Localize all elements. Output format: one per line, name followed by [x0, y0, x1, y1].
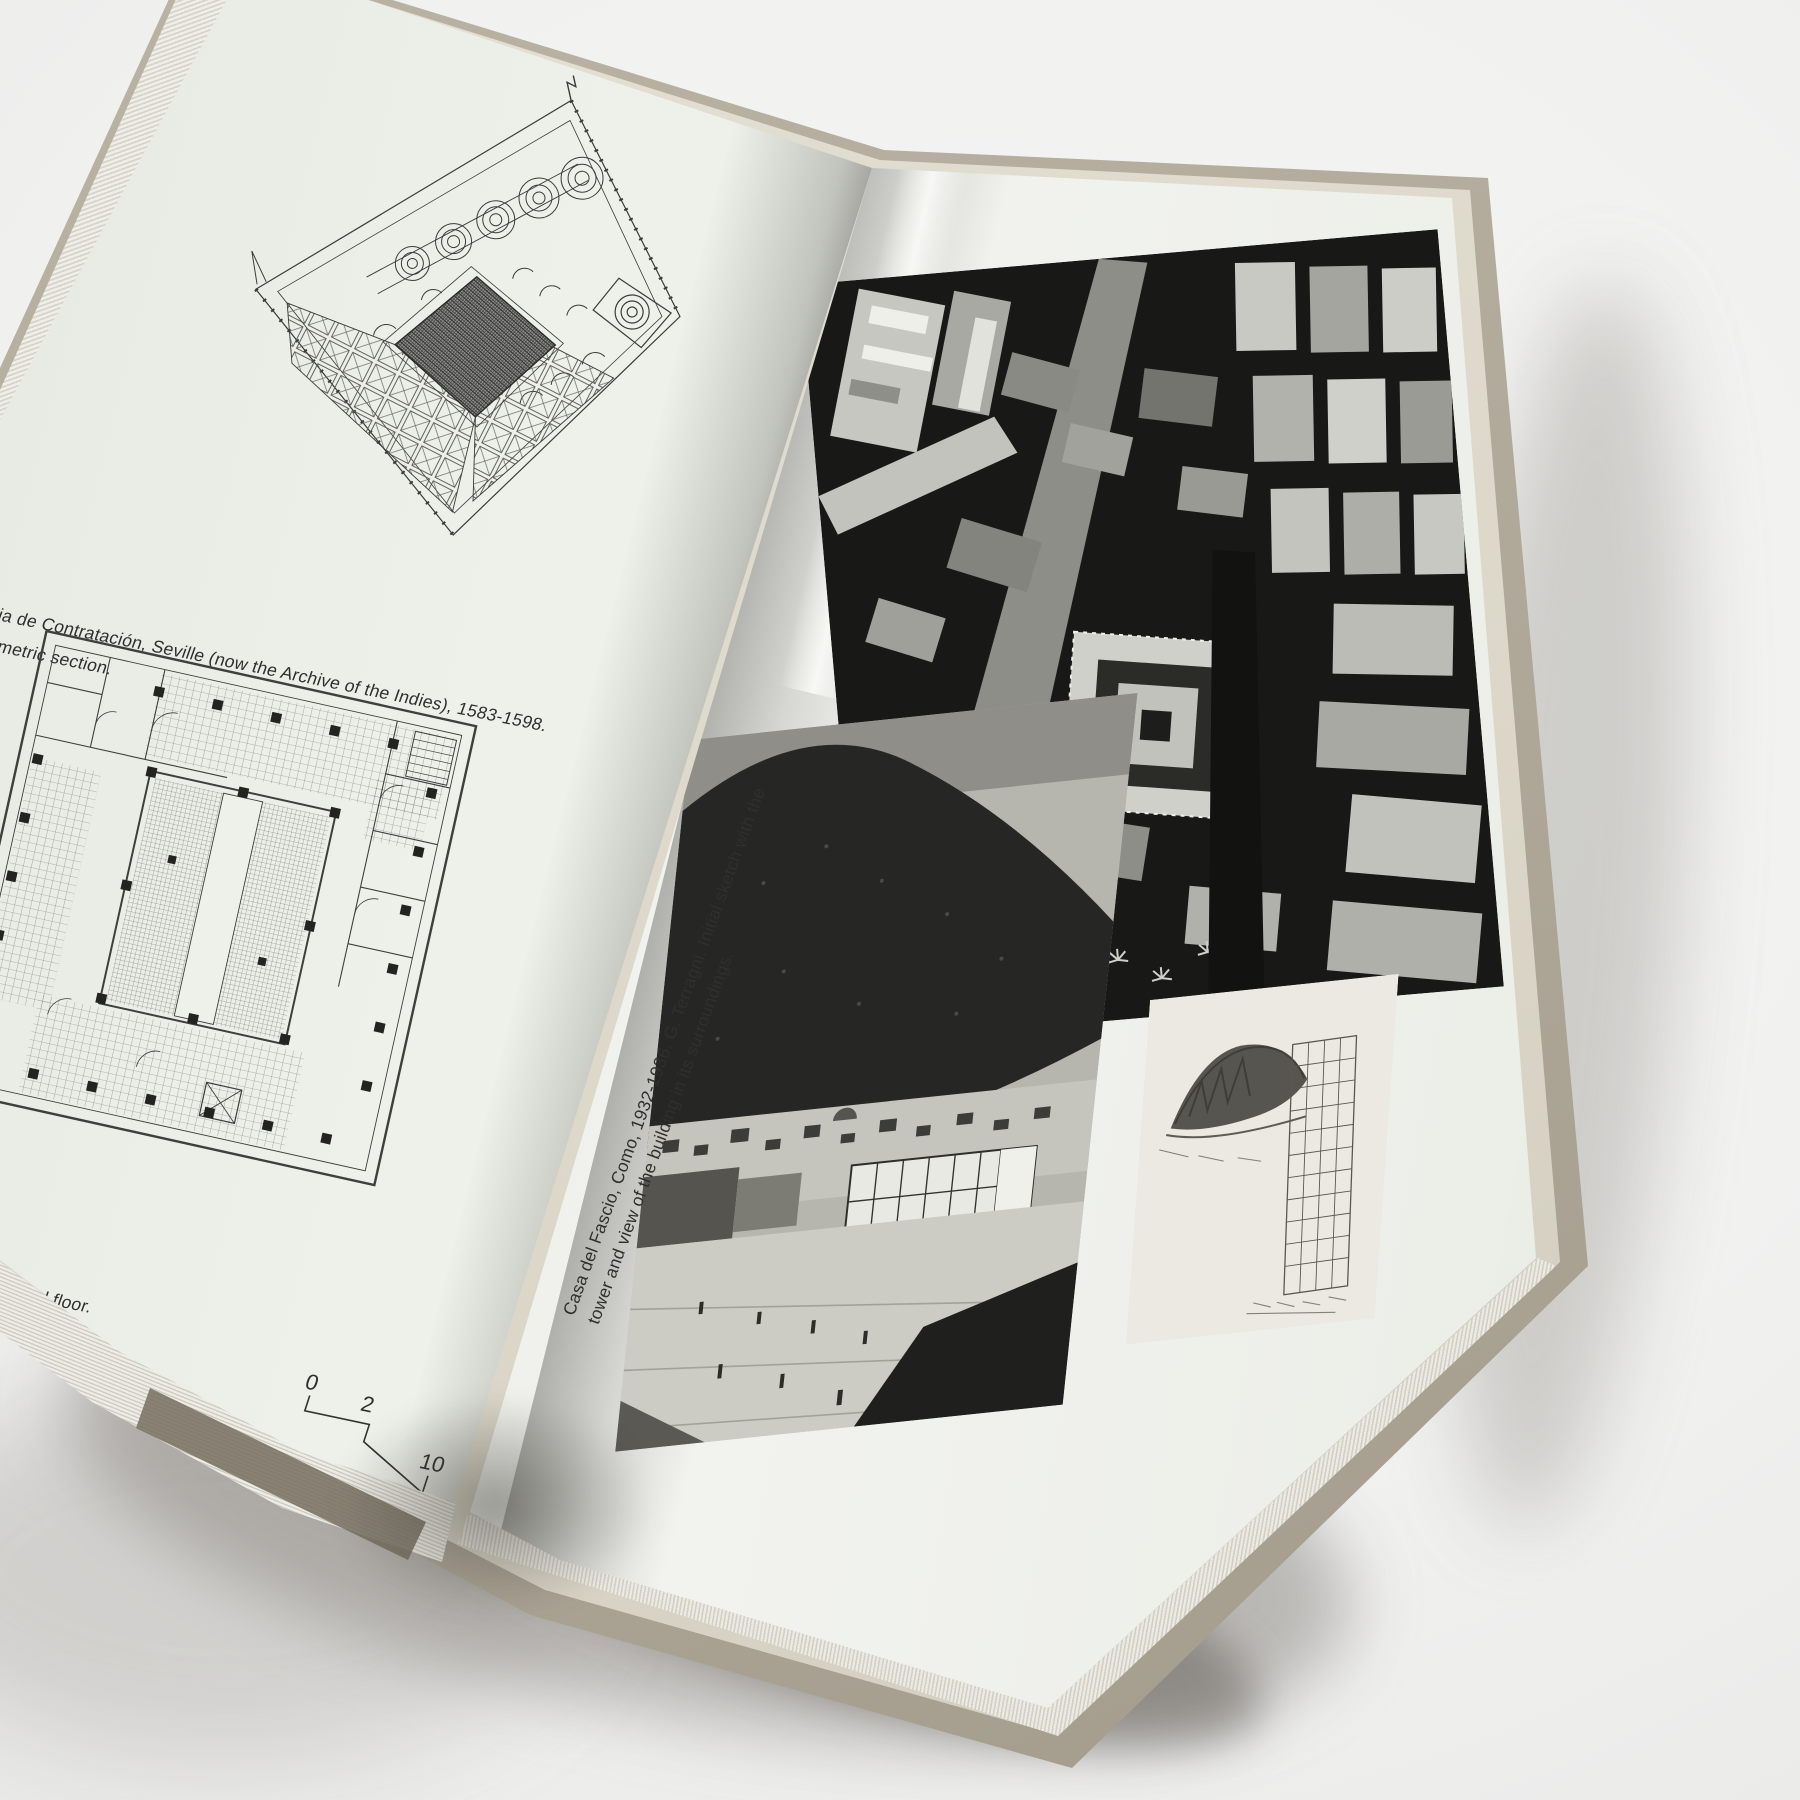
- tower-grid-sketch: [1126, 974, 1399, 1345]
- book-photograph-scene: nja de Contratación, Seville (now the Ar…: [0, 0, 1800, 1800]
- scale-label-2: 2: [358, 1391, 378, 1417]
- scale-label-0: 0: [302, 1369, 322, 1395]
- gutter-bottom-shadow: [330, 1390, 660, 1620]
- axonometric-cutaway-drawing: [213, 58, 707, 562]
- third-floor-plan-drawing: [0, 580, 522, 1241]
